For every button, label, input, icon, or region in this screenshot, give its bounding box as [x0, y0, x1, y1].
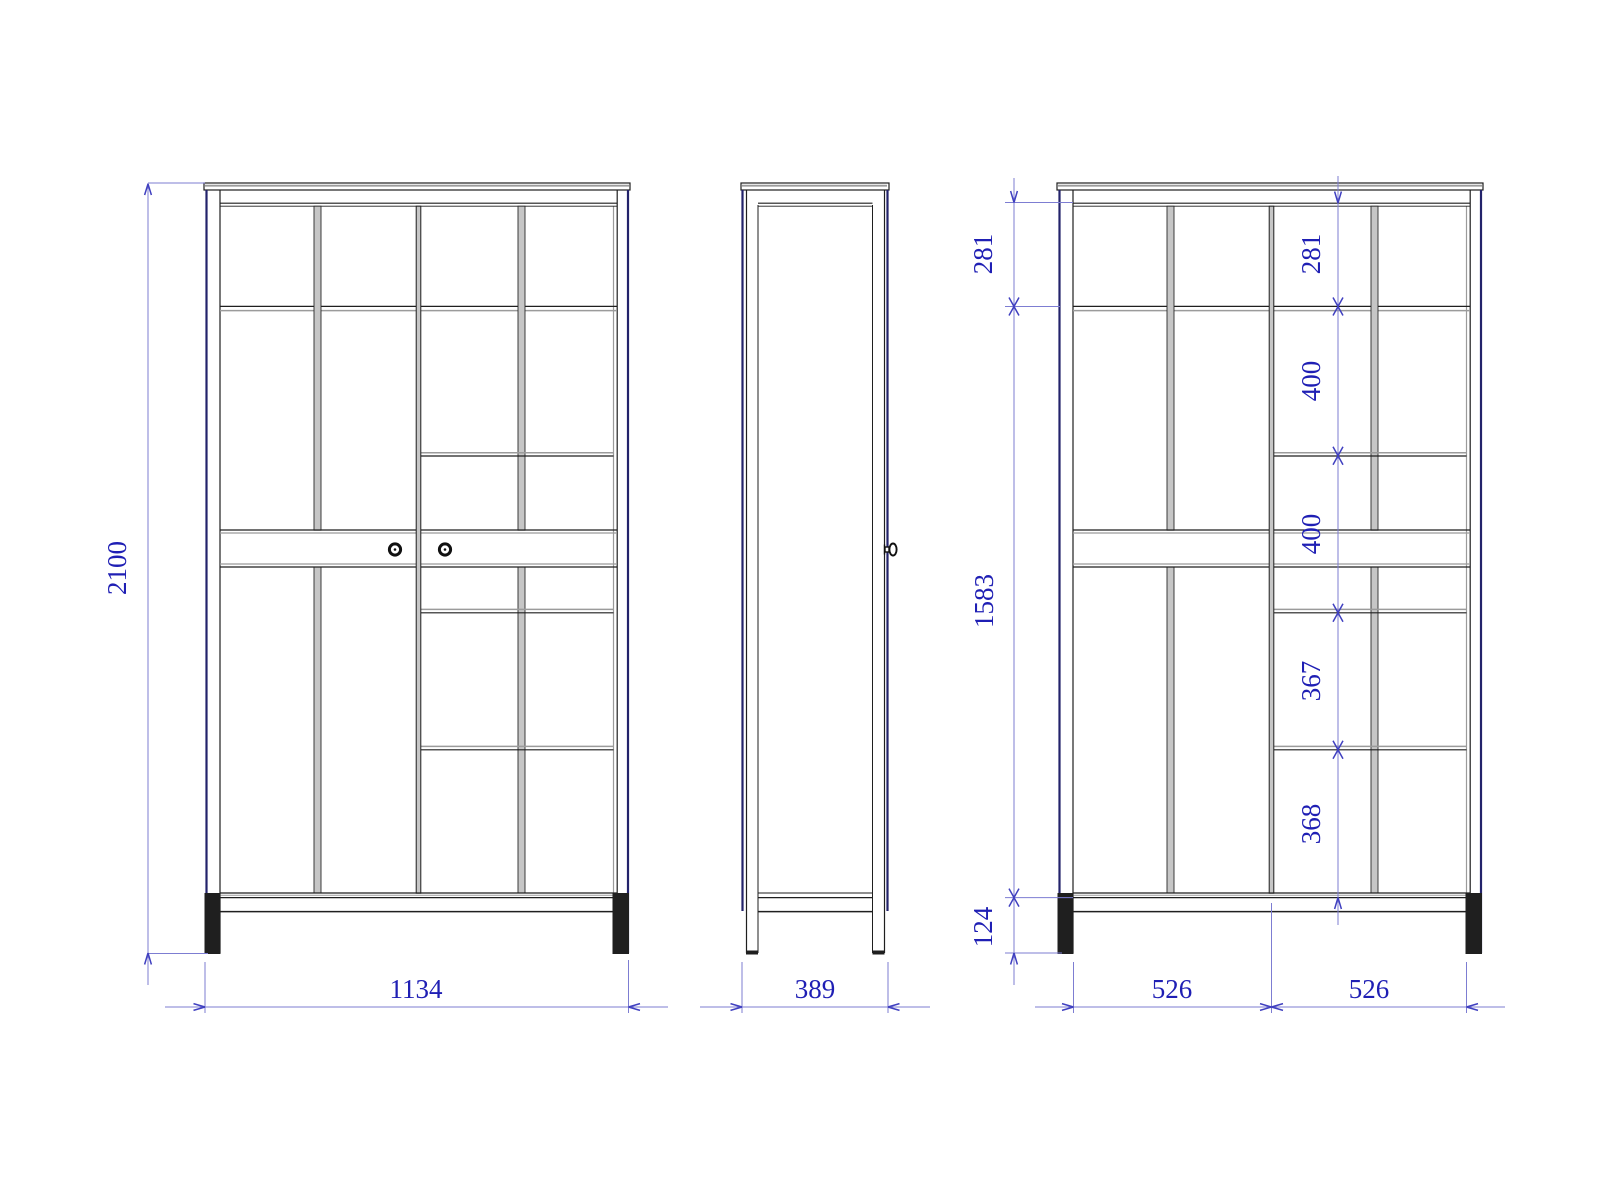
dim-gap4-label: 368 [1296, 804, 1326, 845]
dim-right-chain: 281 400 400 367 368 [1296, 176, 1343, 925]
front-view [204, 183, 630, 954]
side-view [741, 183, 897, 955]
dim-overall-height: 2100 [102, 183, 208, 985]
dim-overall-width: 1134 [165, 960, 668, 1013]
dim-left-span-label: 1583 [969, 574, 999, 628]
dim-bay-right-label: 526 [1349, 974, 1390, 1004]
dim-left-chain: 281 1583 124 [968, 178, 1073, 985]
side-knob-icon [885, 544, 897, 556]
dim-bay-widths: 526 526 [1035, 903, 1505, 1013]
dim-gap3-label: 367 [1296, 661, 1326, 702]
right-door-knob-icon [439, 544, 450, 555]
left-door-knob-icon [389, 544, 400, 555]
dim-gap1-label: 400 [1296, 361, 1326, 402]
dim-depth: 389 [700, 962, 930, 1013]
dim-overall-width-label: 1134 [390, 974, 443, 1004]
dim-overall-height-label: 2100 [102, 541, 132, 595]
dim-left-top-label: 281 [968, 234, 998, 275]
dim-right-top-label: 281 [1296, 234, 1326, 275]
wardrobe-drawing: 2100 1134 389 526 526 [0, 0, 1600, 1200]
dim-bay-left-label: 526 [1152, 974, 1193, 1004]
dim-depth-label: 389 [795, 974, 836, 1004]
drawing-canvas: 2100 1134 389 526 526 [0, 0, 1600, 1200]
internal-view [1057, 183, 1483, 954]
dim-leg-height-label: 124 [968, 906, 998, 947]
dim-gap2-label: 400 [1296, 514, 1326, 555]
